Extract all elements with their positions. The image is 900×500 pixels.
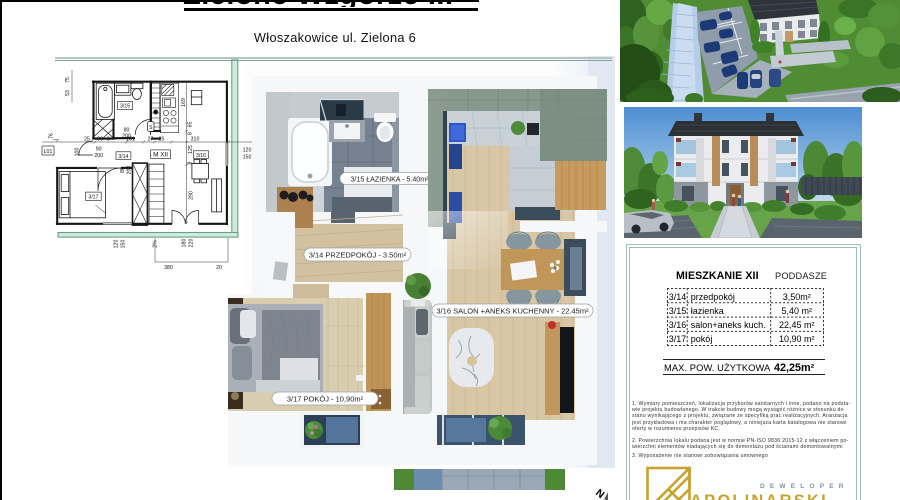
svg-text:80: 80 <box>120 167 126 173</box>
svg-text:200: 200 <box>94 153 103 159</box>
svg-text:25: 25 <box>84 137 90 143</box>
svg-text:9: 9 <box>107 137 110 143</box>
svg-text:8: 8 <box>188 161 194 164</box>
svg-text:90: 90 <box>96 147 102 153</box>
svg-text:100: 100 <box>75 148 81 157</box>
svg-text:3/17: 3/17 <box>88 195 98 201</box>
svg-text:90: 90 <box>97 137 103 143</box>
svg-text:3/15 ŁAZIENKA - 5.40m²: 3/15 ŁAZIENKA - 5.40m² <box>350 175 429 183</box>
svg-text:3/14 PRZEDPOKÓJ - 3.50m²: 3/14 PRZEDPOKÓJ - 3.50m² <box>309 251 407 260</box>
svg-text:75: 75 <box>65 77 71 83</box>
svg-text:3/16 SALON +ANEKS KUCHENNY -: 3/16 SALON +ANEKS KUCHENNY - 22.45m² <box>436 307 589 316</box>
svg-text:3/14: 3/14 <box>118 154 128 160</box>
svg-text:380: 380 <box>164 265 173 271</box>
svg-text:25: 25 <box>159 137 165 143</box>
svg-text:150: 150 <box>243 155 252 161</box>
svg-text:2%: 2% <box>153 240 159 248</box>
svg-text:310: 310 <box>191 137 200 143</box>
svg-text:200: 200 <box>122 134 131 140</box>
svg-text:180: 180 <box>182 239 188 248</box>
svg-text:220: 220 <box>189 239 195 248</box>
svg-text:65: 65 <box>188 122 194 128</box>
svg-text:20: 20 <box>216 265 222 271</box>
svg-text:120: 120 <box>243 148 252 154</box>
svg-text:27: 27 <box>148 137 154 143</box>
svg-text:3/17 POKÓJ - 10,90m²: 3/17 POKÓJ - 10,90m² <box>287 395 364 404</box>
svg-text:M XII: M XII <box>153 151 168 158</box>
svg-text:169: 169 <box>181 98 187 107</box>
svg-text:8: 8 <box>188 132 194 135</box>
svg-text:3/16: 3/16 <box>196 153 206 159</box>
svg-text:L01: L01 <box>44 149 53 155</box>
svg-text:150: 150 <box>121 240 127 249</box>
svg-text:76: 76 <box>49 133 55 139</box>
svg-text:200: 200 <box>127 166 133 175</box>
svg-text:53: 53 <box>65 90 71 96</box>
svg-text:3/15: 3/15 <box>120 104 130 110</box>
svg-text:290: 290 <box>189 191 195 200</box>
svg-text:120: 120 <box>114 240 120 249</box>
svg-text:125: 125 <box>188 145 194 154</box>
